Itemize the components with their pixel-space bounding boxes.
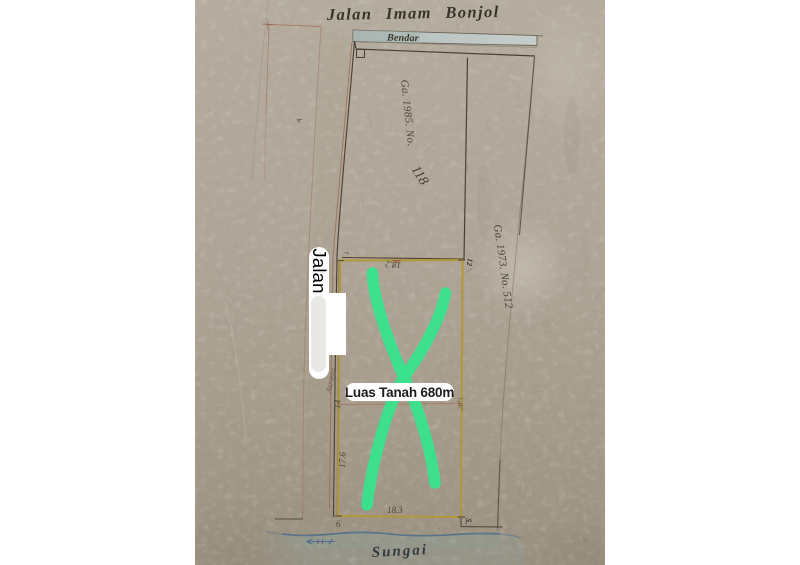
svg-text:6: 6 xyxy=(336,519,341,529)
svg-text:5.: 5. xyxy=(463,518,474,525)
svg-text:Bendar: Bendar xyxy=(386,32,419,44)
svg-text:18.2: 18.2 xyxy=(384,259,401,270)
svg-text:Jalan Imam Bonjol: Jalan Imam Bonjol xyxy=(326,2,500,24)
svg-text:17.6: 17.6 xyxy=(337,451,348,468)
svg-text:18.3: 18.3 xyxy=(387,505,403,515)
svg-text:Sungai: Sungai xyxy=(371,542,428,561)
